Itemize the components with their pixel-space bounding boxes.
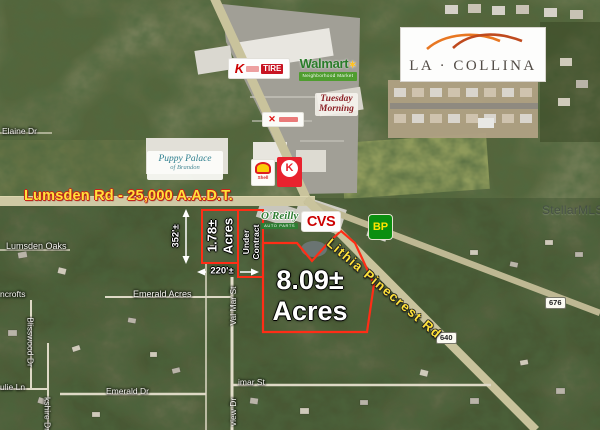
street-label-elaine-dr: Elaine Dr — [2, 127, 37, 136]
walmart-wordmark: Walmart — [300, 56, 349, 71]
woods-east — [540, 22, 600, 142]
x-mark-icon: ✕ — [268, 115, 276, 124]
puppy-palace-sign: Puppy Palace of Brandon — [147, 151, 223, 180]
parcel-large-acreage-label: 8.09± Acres — [272, 265, 347, 327]
la-collina-wordmark: LA · COLLINA — [401, 58, 545, 75]
unidentified-red-logo: ✕ — [262, 112, 304, 127]
tire-logo-word: TIRE — [261, 64, 283, 74]
walmart-banner: Neighborhood Market — [299, 72, 357, 81]
shell-pecten-icon — [255, 162, 271, 174]
oreilly-wordmark: O'Reilly — [261, 211, 298, 222]
walmart-spark-icon: ✶ — [348, 60, 356, 71]
cvs-logo: CVS — [301, 211, 341, 232]
street-label-emerald-dr: Emerald Dr — [106, 387, 149, 396]
parcel-small-acreage-label: 1.78± Acres — [204, 218, 235, 254]
under-contract-line2: Contract — [251, 225, 261, 260]
parcel-large-size: 8.09± — [272, 265, 347, 296]
tuesday-morning-line1: Tuesday — [319, 94, 354, 104]
aerial-listing-photo: LA · COLLINA ✕ K TIRE Walmart✶ Neighborh… — [0, 0, 600, 430]
tire-logo-k: K — [235, 62, 244, 75]
street-label-emerald-acres: Emerald Acres — [133, 290, 192, 299]
illegible-tire-text — [246, 66, 259, 72]
lumsden-road-label: Lumsden Rd - 25,000 A.A.D.T. — [24, 189, 233, 204]
street-label-lumsden-oaks: Lumsden Oaks — [6, 242, 67, 251]
route-shield-676: 676 — [545, 297, 566, 309]
la-collina-logo: LA · COLLINA — [400, 27, 546, 82]
dimension-220-label: 220'± — [210, 265, 233, 276]
dimension-352-label: 352'± — [170, 224, 181, 247]
oreilly-logo: O'Reilly AUTO PARTS — [261, 211, 298, 229]
street-label-imar-st: imar St — [238, 378, 265, 387]
tuesday-morning-logo: Tuesday Morning — [315, 93, 358, 116]
tuesday-morning-line2: Morning — [319, 104, 354, 114]
parcel-small-unit: Acres — [220, 218, 236, 254]
bp-logo: BP — [368, 214, 393, 240]
under-contract-line1: Under — [241, 225, 251, 260]
tire-store-logo: K TIRE — [228, 58, 290, 79]
circle-k-logo: K — [277, 157, 302, 187]
puppy-palace-line1: Puppy Palace — [147, 154, 223, 164]
street-label-julie-ln: ulie Ln — [0, 383, 25, 392]
parcel-small-size: 1.78± — [204, 218, 220, 254]
street-label-view-dr: view Dr — [229, 398, 238, 426]
street-label-berkshire-dr: kshire Dr — [43, 397, 52, 430]
puppy-palace-line2: of Brandon — [147, 164, 223, 171]
street-label-valmar-st: Val Mar St — [229, 286, 238, 325]
parcel-large-unit: Acres — [272, 296, 347, 327]
oreilly-subtext: AUTO PARTS — [261, 223, 298, 229]
circle-k-letter: K — [281, 160, 298, 177]
walmart-logo: Walmart✶ Neighborhood Market — [299, 57, 357, 81]
la-collina-swoosh-icon — [401, 28, 545, 52]
shell-logo: Shell — [251, 159, 275, 186]
stellar-mls-watermark: StellarMLS — [542, 203, 600, 217]
shell-wordmark: Shell — [252, 174, 274, 181]
under-contract-label: Under Contract — [241, 225, 261, 260]
street-label-blisswood-dr: Blisswood Dr — [26, 317, 35, 367]
street-label-ncrofts: ncrofts — [0, 290, 26, 299]
illegible-red-text — [279, 117, 298, 122]
